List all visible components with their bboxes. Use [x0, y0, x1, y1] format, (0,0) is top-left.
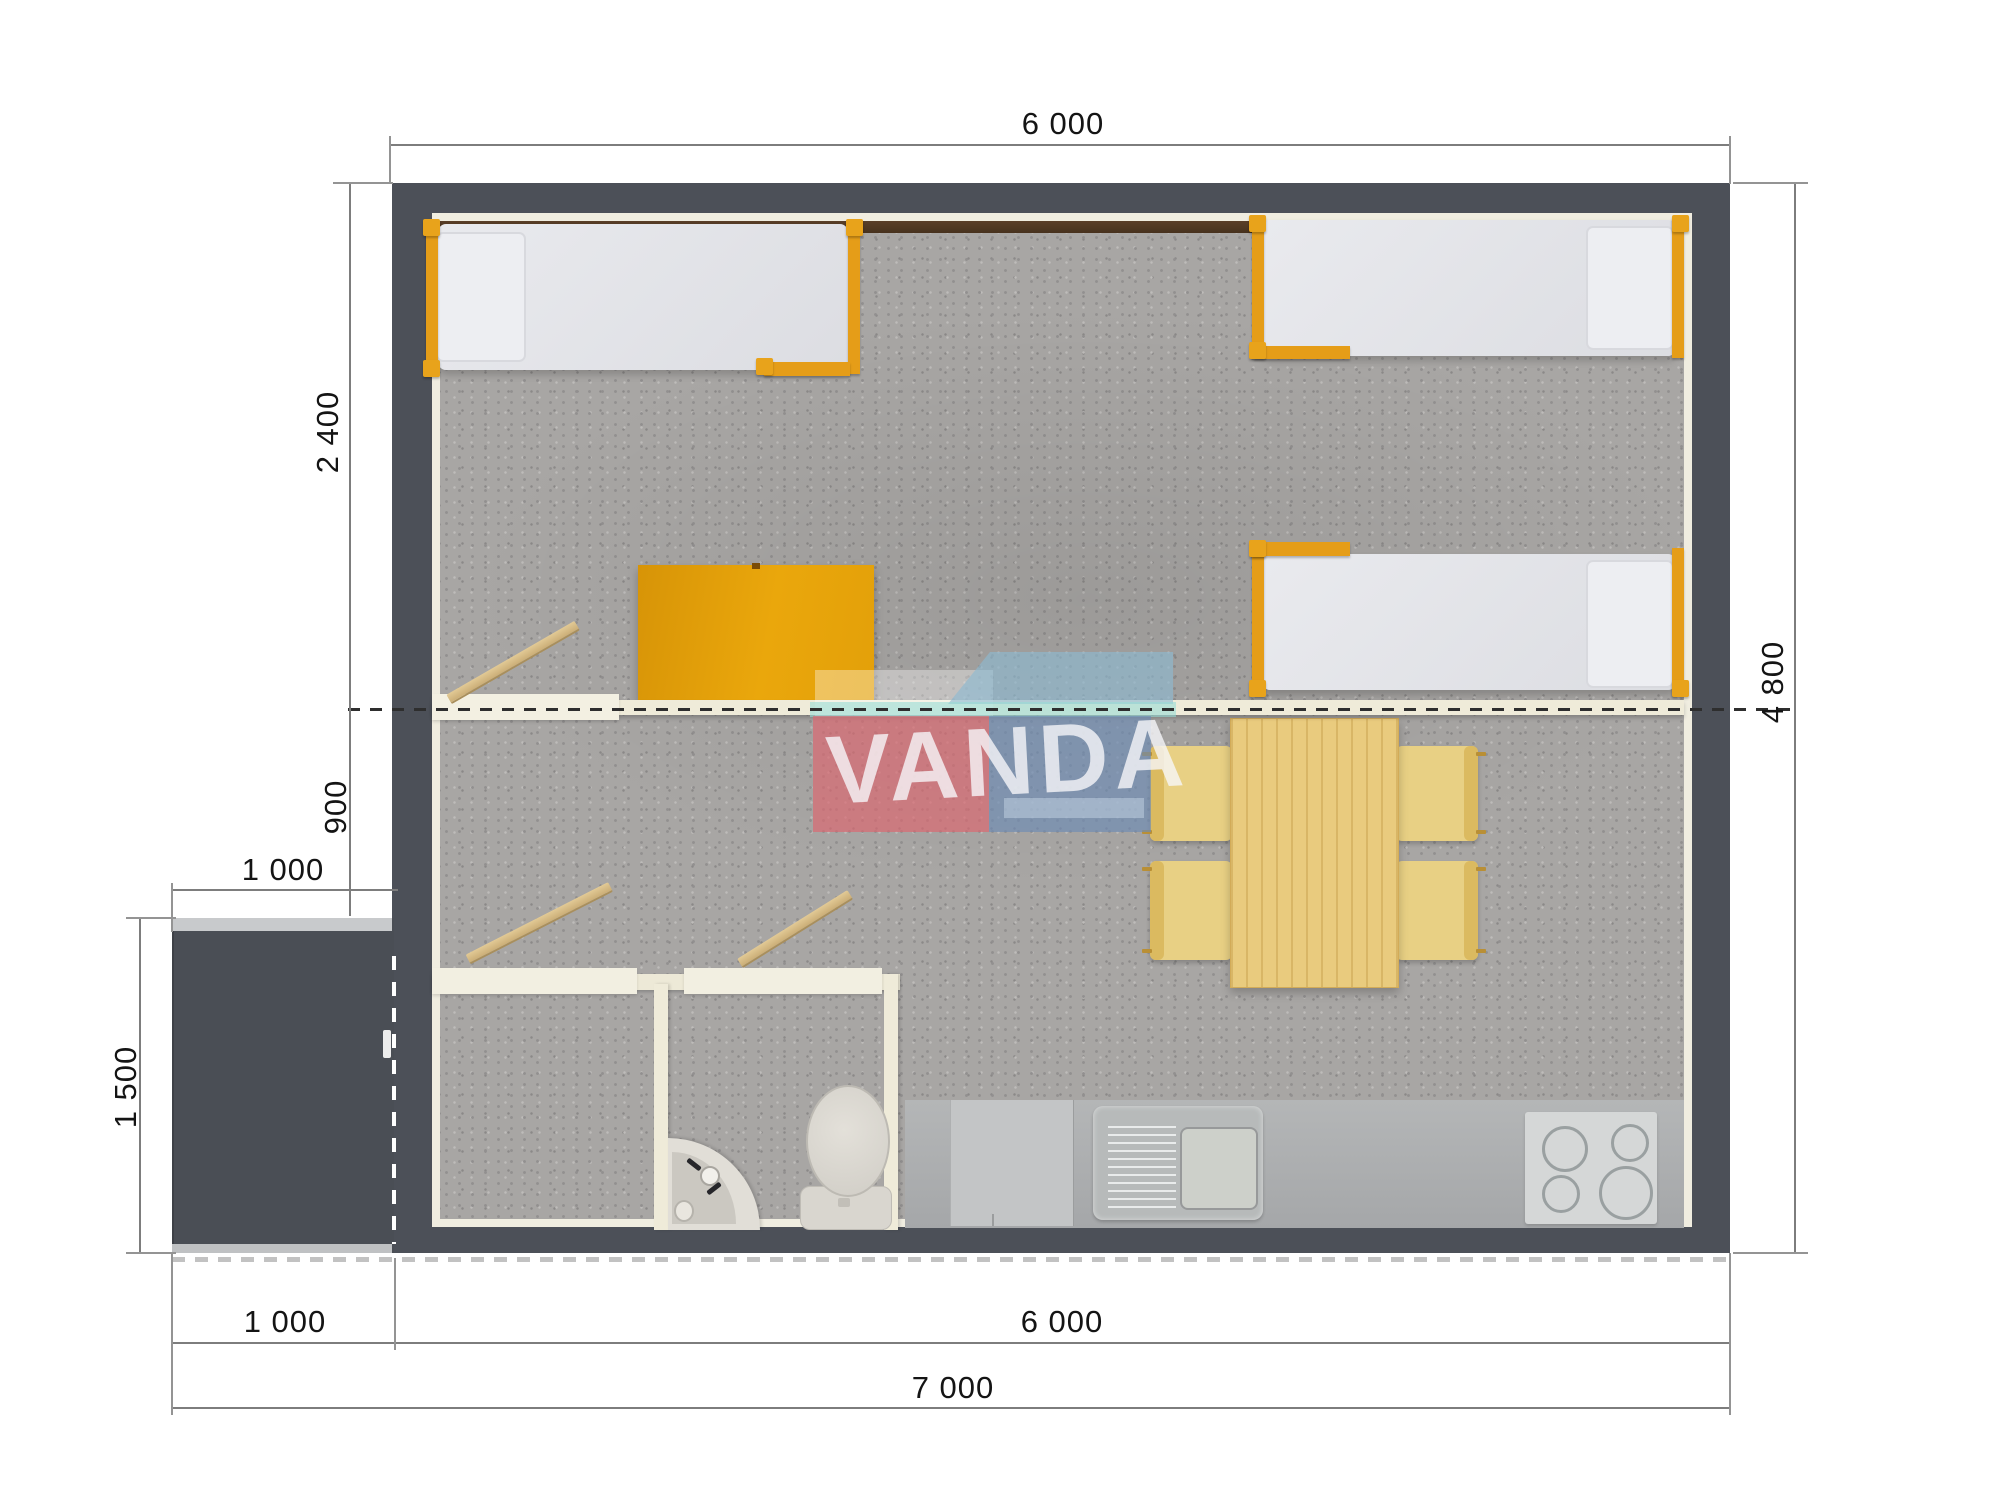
chair-leg: [1476, 752, 1486, 756]
dim-line-porch-width: [172, 889, 398, 891]
ext-line: [389, 136, 391, 184]
chair-backrest: [1150, 861, 1164, 960]
bathroom-divider-wall: [654, 984, 668, 1230]
bed-frame-rail: [1672, 548, 1684, 695]
chair-left-bottom: [1150, 861, 1232, 960]
bathroom-wall-plate-right: [684, 968, 882, 994]
dim-line-bottom-2: [172, 1407, 1730, 1409]
ext-line: [394, 1258, 396, 1350]
bed-foot-rail: [1254, 346, 1350, 359]
bed-frame-rail: [426, 222, 438, 374]
bed-head-rail: [1252, 542, 1350, 556]
bed-frame-rail: [1252, 218, 1264, 358]
chair-leg: [1142, 949, 1152, 953]
dim-label-bedroom-depth: 2 400: [310, 332, 346, 532]
watermark-sky-ribbon: [948, 652, 1173, 704]
pillow: [436, 232, 526, 362]
chair-leg: [1476, 949, 1486, 953]
dining-table: [1230, 718, 1399, 988]
module-split-dashed-line: [348, 708, 1795, 711]
roof-overhang-dashed-line: [172, 1257, 1730, 1262]
dim-label-bottom-house-width: 6 000: [962, 1304, 1162, 1340]
chair-leg: [1476, 830, 1486, 834]
bed-top-left: [426, 222, 860, 374]
chair-leg: [1476, 867, 1486, 871]
ext-line: [1733, 182, 1808, 184]
dim-line-right: [1794, 183, 1796, 1253]
bed-frame-rail: [848, 222, 860, 374]
ext-line: [333, 182, 393, 184]
bed-corner-post: [846, 219, 863, 236]
bed-corner-post: [1249, 540, 1266, 557]
dim-label-right-depth: 4 800: [1755, 582, 1791, 782]
ext-line: [171, 1253, 173, 1415]
appliance-seam: [992, 1214, 994, 1226]
bed-foot-rail: [764, 362, 850, 376]
entrance-porch: [172, 918, 394, 1253]
wardrobe-handle-icon: [752, 563, 760, 569]
bed-top-right: [1252, 218, 1684, 358]
pillow: [1586, 560, 1674, 688]
soap-bottle-icon: [674, 1200, 694, 1222]
dim-label-bottom-total-width: 7 000: [853, 1370, 1053, 1406]
ext-line: [1729, 136, 1731, 184]
dim-line-bottom-1: [172, 1342, 1730, 1344]
ext-line: [126, 1252, 176, 1254]
chair-leg: [1142, 867, 1152, 871]
chair-backrest: [1464, 746, 1478, 841]
ext-line: [171, 883, 173, 932]
burner-icon: [1542, 1175, 1580, 1213]
bed-corner-post: [1249, 680, 1266, 697]
bed-corner-post: [423, 219, 440, 236]
toilet: [806, 1085, 890, 1197]
bed-corner-post: [1249, 215, 1266, 232]
bed-frame-rail: [1252, 542, 1264, 695]
dim-line-top: [390, 144, 1730, 146]
pillow: [1586, 226, 1674, 350]
burner-icon: [1599, 1166, 1653, 1220]
chair-right-top: [1396, 746, 1478, 841]
bed-corner-post: [423, 360, 440, 377]
bathroom-wall-plate-left: [432, 968, 637, 994]
bed-lower-right: [1252, 540, 1684, 695]
bed-corner-post: [756, 358, 773, 375]
bed-frame-rail: [1672, 218, 1684, 358]
burner-icon: [1542, 1126, 1588, 1172]
chair-right-bottom: [1396, 861, 1478, 960]
vanda-watermark: VANDA: [808, 652, 1180, 837]
dim-label-porch-width-upper: 1 000: [183, 852, 383, 888]
ext-line: [1733, 1252, 1808, 1254]
watermark-logo-text: VANDA: [823, 697, 1168, 827]
porch-step-edge-bottom: [172, 1244, 392, 1253]
kitchen-appliance: [950, 1100, 1074, 1226]
bed-corner-post: [1672, 680, 1689, 697]
sink-drainboard: [1108, 1126, 1176, 1208]
ext-line: [1729, 1253, 1731, 1415]
ext-line: [126, 917, 176, 919]
bed-corner-post: [1672, 215, 1689, 232]
door-handle-icon: [383, 1030, 391, 1058]
dim-label-bottom-porch-width: 1 000: [185, 1304, 385, 1340]
sink-basin: [1180, 1127, 1258, 1210]
dim-label-porch-depth: 1 500: [108, 987, 144, 1187]
porch-step-edge-top: [172, 918, 392, 931]
burner-icon: [1611, 1124, 1649, 1162]
toilet-flush-button-icon: [838, 1198, 850, 1207]
dim-label-top-width: 6 000: [963, 106, 1163, 142]
bed-corner-post: [1249, 342, 1266, 359]
floor-plan-canvas: VANDA 6 000 2 400 900 1 000 1 500 4 800 …: [0, 0, 2000, 1502]
chair-backrest: [1464, 861, 1478, 960]
entrance-door-icon: [392, 956, 396, 1244]
